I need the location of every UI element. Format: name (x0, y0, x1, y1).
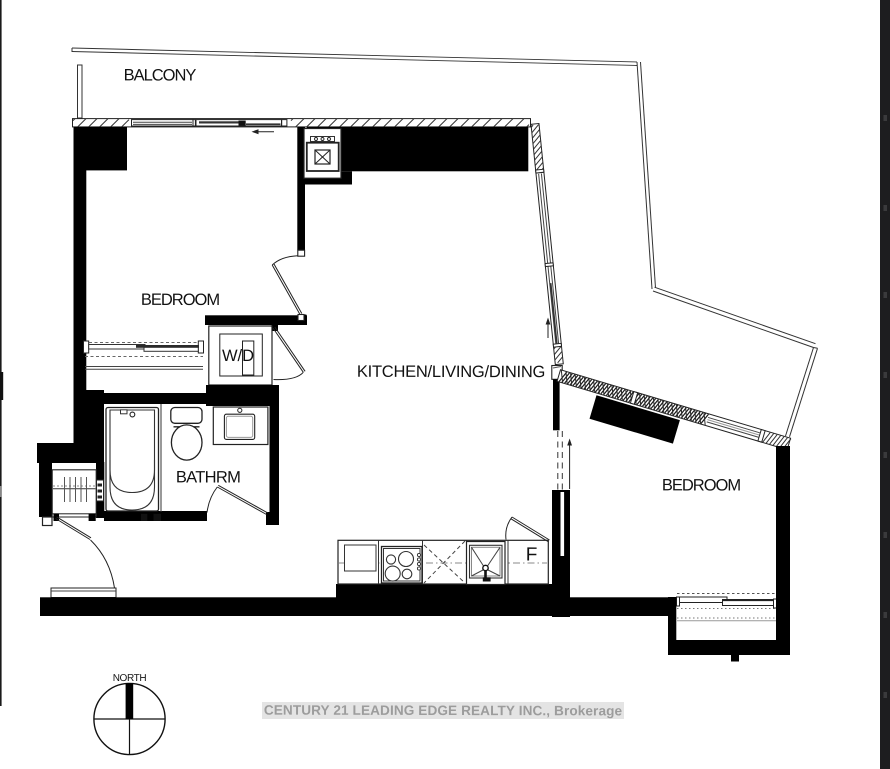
svg-text:W/D: W/D (222, 347, 254, 365)
svg-text:BEDROOM: BEDROOM (662, 476, 741, 494)
svg-text:KITCHEN/LIVING/DINING: KITCHEN/LIVING/DINING (357, 363, 545, 381)
svg-text:F: F (526, 544, 538, 565)
svg-text:BALCONY: BALCONY (124, 66, 197, 84)
svg-text:BATHRM: BATHRM (176, 468, 240, 486)
svg-text:CENTURY 21 LEADING EDGE REALTY: CENTURY 21 LEADING EDGE REALTY INC., Bro… (264, 703, 623, 719)
svg-text:NORTH: NORTH (113, 673, 147, 684)
svg-text:BEDROOM: BEDROOM (141, 291, 220, 309)
